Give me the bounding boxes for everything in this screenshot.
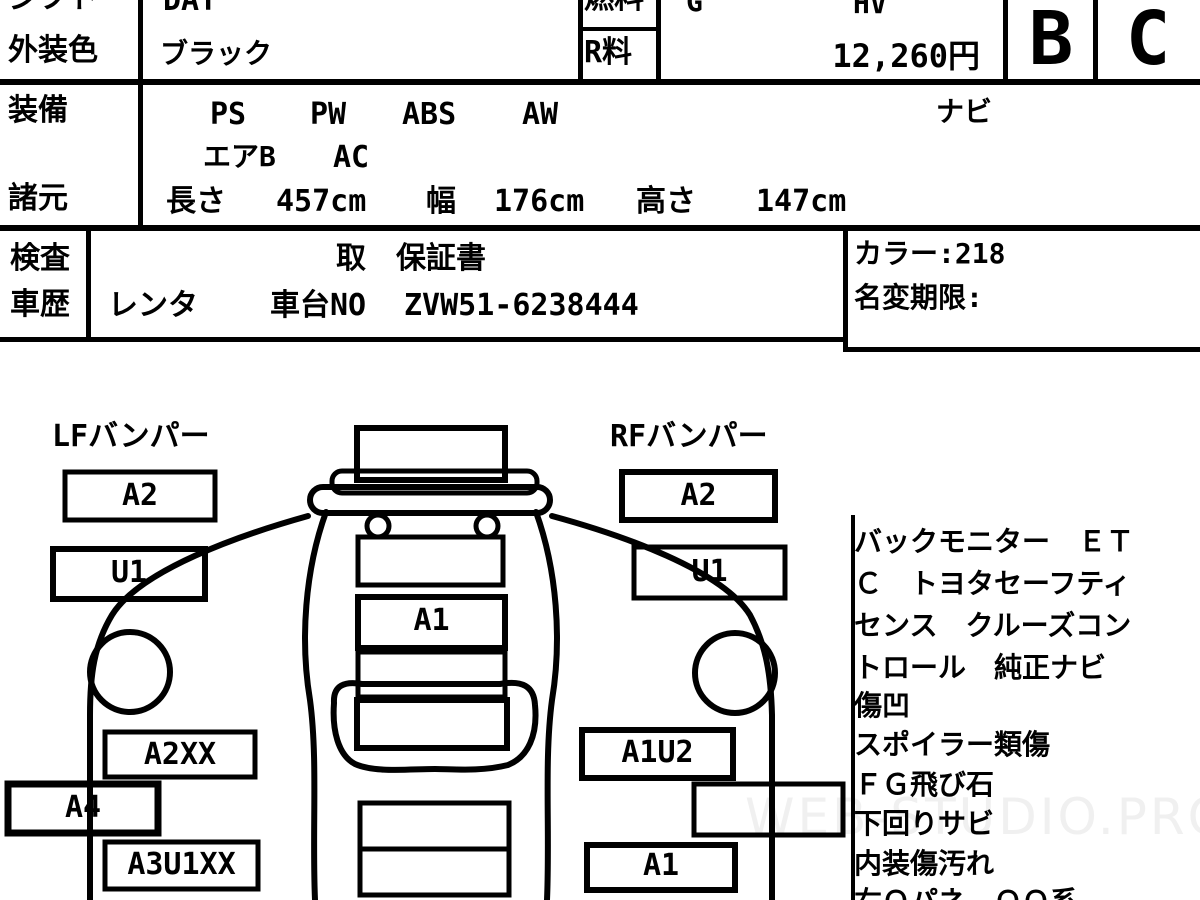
fuel-value: G bbox=[686, 0, 703, 16]
rf-u1-mark: U1 bbox=[634, 557, 785, 587]
hybrid-flag: HV bbox=[853, 0, 887, 18]
shift-value: DAT bbox=[163, 0, 217, 16]
hline-inspect-bottom bbox=[0, 337, 845, 342]
name-change-limit: 名変期限: bbox=[854, 284, 983, 312]
center-a1-mark: A1 bbox=[358, 606, 505, 636]
rf-bumper-label: RFバンパー bbox=[610, 422, 768, 452]
lf-a4-mark: A4 bbox=[8, 793, 158, 823]
width-label: 幅 bbox=[426, 187, 456, 217]
lf-bumper-label: LFバンパー bbox=[52, 422, 210, 452]
chassis-no: ZVW51-6238444 bbox=[404, 291, 639, 321]
center-box-empty-2 bbox=[358, 652, 505, 697]
note-line-4: トロール 純正ナビ bbox=[854, 654, 1106, 682]
inspect-label: 検査 bbox=[10, 244, 70, 274]
height-label: 高さ bbox=[636, 187, 696, 217]
length-value: 457cm bbox=[276, 187, 366, 217]
lf-a2-mark: A2 bbox=[65, 481, 215, 511]
note-line-5: 傷凹 bbox=[854, 692, 910, 720]
equipment-pw: PW bbox=[310, 100, 346, 130]
right-wheel bbox=[695, 633, 775, 713]
note-line-9: 内装傷汚れ bbox=[854, 850, 994, 878]
note-line-3: センス クルーズコン bbox=[854, 612, 1131, 640]
washer-dot-left bbox=[367, 515, 389, 537]
vline-inspect-col bbox=[86, 228, 91, 342]
note-line-10: 右Ｑパネ ＱＱ系 bbox=[854, 888, 1078, 900]
exterior-color-label: 外装色 bbox=[8, 36, 98, 66]
recycle-fee-value: 12,260円 bbox=[740, 40, 980, 72]
chassis-label: 車台NO bbox=[270, 291, 366, 321]
washer-dot-right bbox=[476, 515, 498, 537]
windshield-inner-box bbox=[357, 700, 507, 748]
width-value: 176cm bbox=[494, 187, 584, 217]
grade-overall: B bbox=[1008, 2, 1094, 76]
note-line-8: 下回りサビ bbox=[854, 810, 994, 838]
history-value: レンタ bbox=[108, 291, 198, 321]
lf-a3u1xx-mark: A3U1XX bbox=[105, 850, 258, 880]
vline-fuel-right bbox=[656, 0, 661, 82]
car-outline-left-side bbox=[305, 512, 326, 900]
equipment-ps: PS bbox=[210, 100, 246, 130]
hline-header-1 bbox=[0, 79, 1200, 85]
equipment-navi: ナビ bbox=[936, 98, 992, 126]
hline-header-2 bbox=[0, 225, 1200, 231]
rf-a1-mark: A1 bbox=[587, 851, 735, 881]
equipment-ac: AC bbox=[333, 143, 369, 173]
rf-a2-mark: A2 bbox=[622, 481, 775, 511]
shift-label: シフト bbox=[8, 0, 98, 14]
hline-right-panel bbox=[843, 347, 1200, 352]
lf-u1-mark: U1 bbox=[53, 558, 205, 588]
equipment-abs: ABS bbox=[402, 100, 456, 130]
height-value: 147cm bbox=[756, 187, 846, 217]
equipment-airbag: エアB bbox=[203, 143, 276, 171]
note-line-2: Ｃ トヨタセーフティ bbox=[854, 570, 1131, 598]
hline-fuel-divider bbox=[578, 27, 661, 31]
left-wheel bbox=[90, 632, 170, 712]
vline-fuel-left bbox=[578, 0, 583, 82]
note-line-1: バックモニター ＥＴ bbox=[854, 528, 1134, 556]
color-code: カラー:218 bbox=[854, 240, 1005, 268]
rf-a1u2-mark: A1U2 bbox=[582, 738, 733, 768]
spec-label: 諸元 bbox=[8, 184, 68, 214]
warranty-line: 取 保証書 bbox=[336, 244, 486, 274]
fuel-label: 燃料 bbox=[584, 0, 644, 14]
note-line-6: スポイラー類傷 bbox=[854, 731, 1050, 759]
length-label: 長さ bbox=[166, 187, 226, 217]
grade-interior: C bbox=[1098, 2, 1198, 76]
history-label: 車歴 bbox=[10, 290, 70, 320]
center-box-empty-1 bbox=[358, 537, 503, 585]
recycle-fee-label: R料 bbox=[584, 38, 632, 68]
equipment-label: 装備 bbox=[8, 96, 68, 126]
rf-empty-box bbox=[694, 784, 843, 835]
exterior-color-value: ブラック bbox=[160, 40, 272, 68]
vline-label-col bbox=[138, 0, 143, 228]
equipment-aw: AW bbox=[522, 100, 558, 130]
car-outline-right-side bbox=[536, 512, 557, 900]
auction-sheet: WEB-STUDIO.PRO bbox=[0, 0, 1200, 900]
lf-a2xx-mark: A2XX bbox=[105, 740, 255, 770]
vline-right-panel bbox=[843, 228, 848, 352]
note-line-7: ＦＧ飛び石 bbox=[854, 771, 994, 799]
